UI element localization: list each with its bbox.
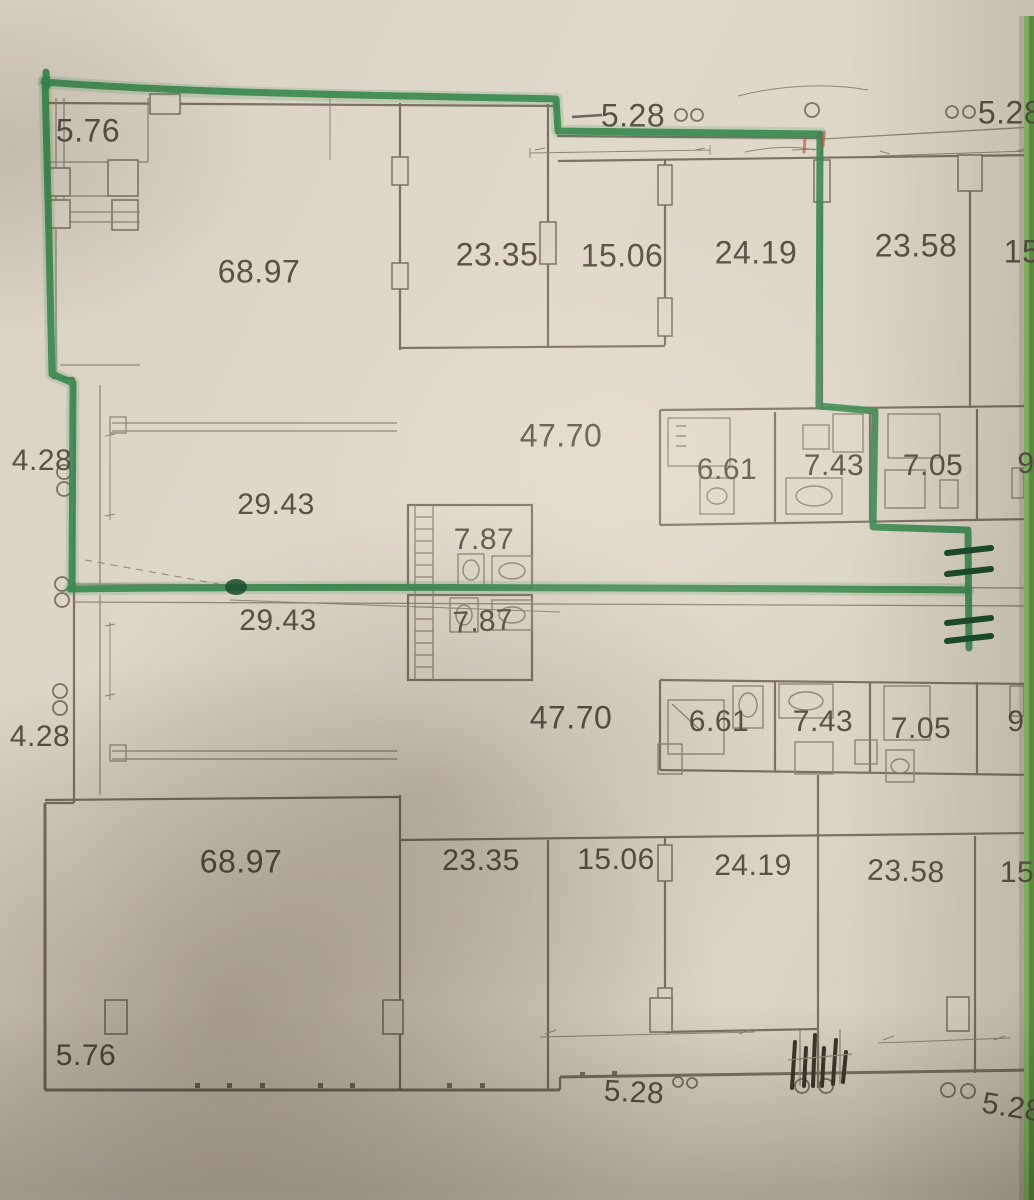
area-29-43-top: 29.43 (237, 488, 315, 522)
dim-5-28-top: 5.28 (601, 98, 665, 135)
area-6-61-top: 6.61 (697, 453, 757, 487)
area-5-76-top: 5.76 (56, 113, 120, 150)
area-7-43-top: 7.43 (804, 449, 864, 483)
area-15-06-top: 15.06 (581, 238, 664, 275)
area-24-19-top: 24.19 (715, 235, 798, 272)
dim-5-76-bottom: 5.76 (56, 1039, 116, 1073)
area-7-05-bottom: 7.05 (891, 712, 951, 746)
area-23-35-bottom: 23.35 (442, 844, 520, 878)
dim-5-28-top-right: 5.28 (978, 95, 1034, 132)
dim-4-28-bottom: 4.28 (10, 720, 70, 754)
area-15-06-bottom: 15.06 (577, 843, 655, 877)
area-24-19-bottom: 24.19 (714, 849, 792, 883)
dim-5-28-bottom: 5.28 (603, 1074, 665, 1111)
area-6-61-bottom: 6.61 (689, 705, 749, 739)
dim-4-28-top: 4.28 (12, 444, 72, 478)
area-7-05-top: 7.05 (903, 449, 963, 483)
area-23-58-top: 23.58 (875, 228, 958, 265)
area-15-bottom-cut: 15 (1000, 856, 1034, 890)
floor-plan-photo: 5.7668.9723.3515.0624.1923.58155.285.284… (0, 0, 1034, 1200)
dim-5-28-bottom-right: 5.28 (980, 1086, 1034, 1129)
area-7-87-top: 7.87 (454, 523, 514, 557)
area-15-top-cut: 15 (1004, 234, 1034, 271)
area-68-97-bottom: 68.97 (200, 844, 283, 881)
area-9-top-cut: 9 (1017, 447, 1034, 481)
area-23-35-top: 23.35 (456, 237, 539, 274)
labels-layer: 5.7668.9723.3515.0624.1923.58155.285.284… (0, 0, 1034, 1200)
area-68-97-top: 68.97 (218, 254, 301, 291)
area-29-43-bottom: 29.43 (239, 604, 317, 638)
area-47-70-bottom: 47.70 (530, 700, 613, 737)
area-47-70-top: 47.70 (520, 418, 603, 455)
area-9-bottom-cut: 9 (1007, 705, 1024, 739)
area-7-87-bottom: 7.87 (452, 603, 514, 640)
area-23-58-bottom: 23.58 (867, 854, 946, 891)
area-7-43-bottom: 7.43 (793, 705, 853, 739)
